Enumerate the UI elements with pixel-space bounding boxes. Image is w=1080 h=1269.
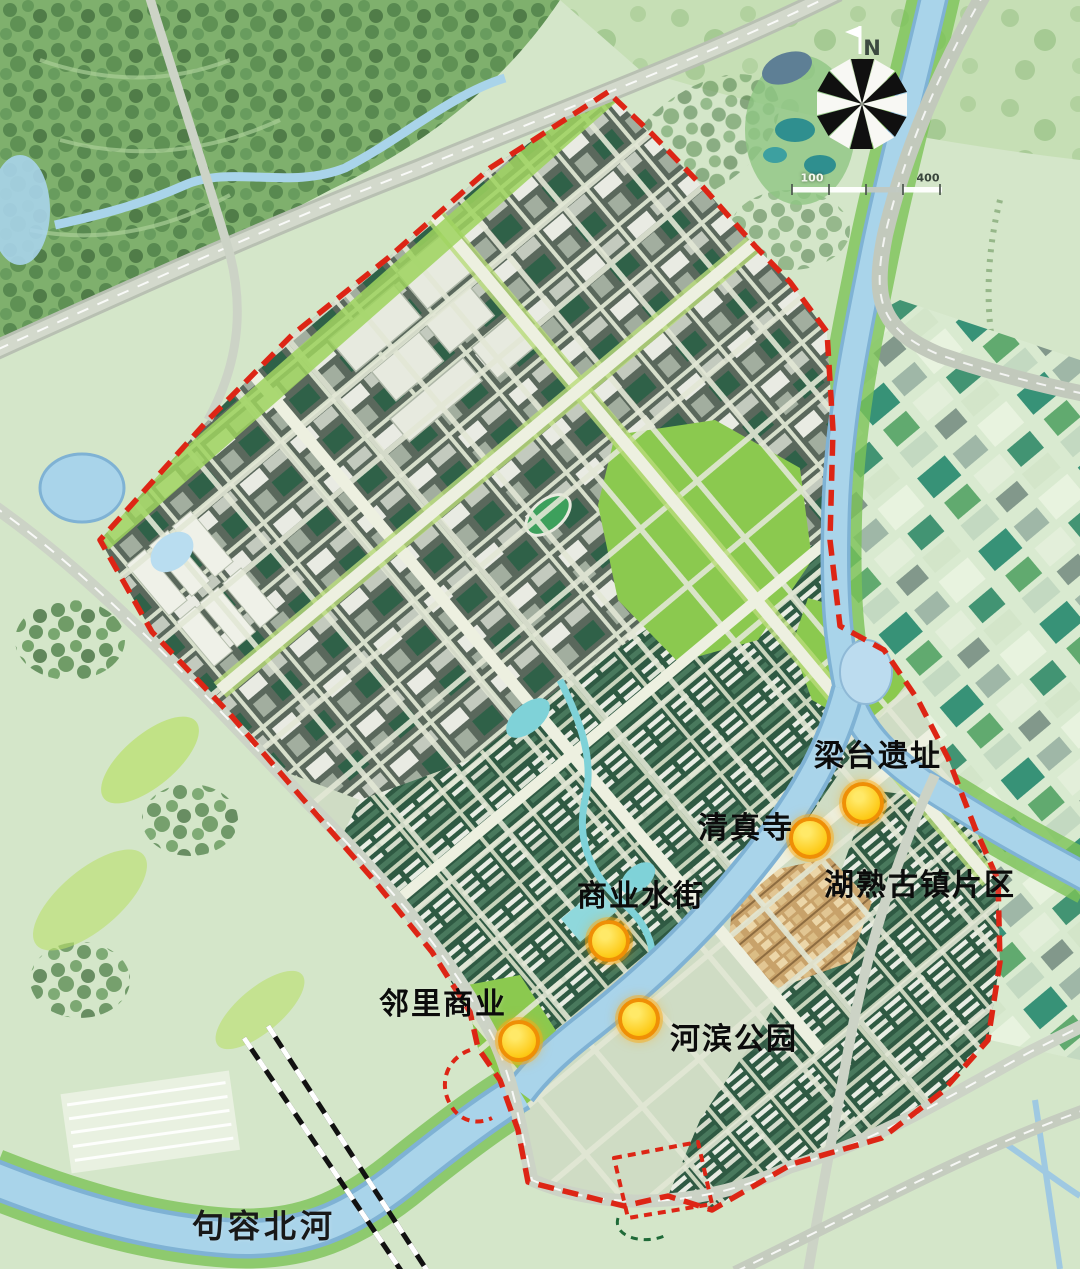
poi-marker-qingzhen-mosque[interactable] — [789, 817, 831, 859]
poi-label-riverside-park: 河滨公园 — [670, 1025, 798, 1055]
poi-marker-liangtai-ruins[interactable] — [842, 782, 884, 824]
poi-label-hushu-ancient-town-area: 湖熟古镇片区 — [824, 871, 1016, 901]
scale-bar-right-value: 400 — [917, 172, 940, 185]
poi-marker-riverside-park[interactable] — [618, 998, 660, 1040]
master-plan-map: 梁台遗址 清真寺 商业水街 湖熟古镇片区 邻里商业 河滨公园 句容北河 N 10… — [0, 0, 1080, 1269]
scale-bar-left-value: 100 — [801, 172, 824, 185]
poi-marker-neighborhood-commerce[interactable] — [498, 1020, 540, 1062]
compass-north-label: N — [863, 36, 881, 60]
poi-marker-commercial-water-street[interactable] — [588, 920, 630, 962]
poi-label-qingzhen-mosque: 清真寺 — [698, 814, 794, 844]
poi-label-liangtai-ruins: 梁台遗址 — [814, 742, 942, 772]
map-canvas — [0, 0, 1080, 1269]
poi-label-jurong-north-river: 句容北河 — [192, 1210, 336, 1242]
poi-label-commercial-water-street: 商业水街 — [577, 882, 705, 912]
poi-label-neighborhood-commerce: 邻里商业 — [379, 990, 507, 1020]
